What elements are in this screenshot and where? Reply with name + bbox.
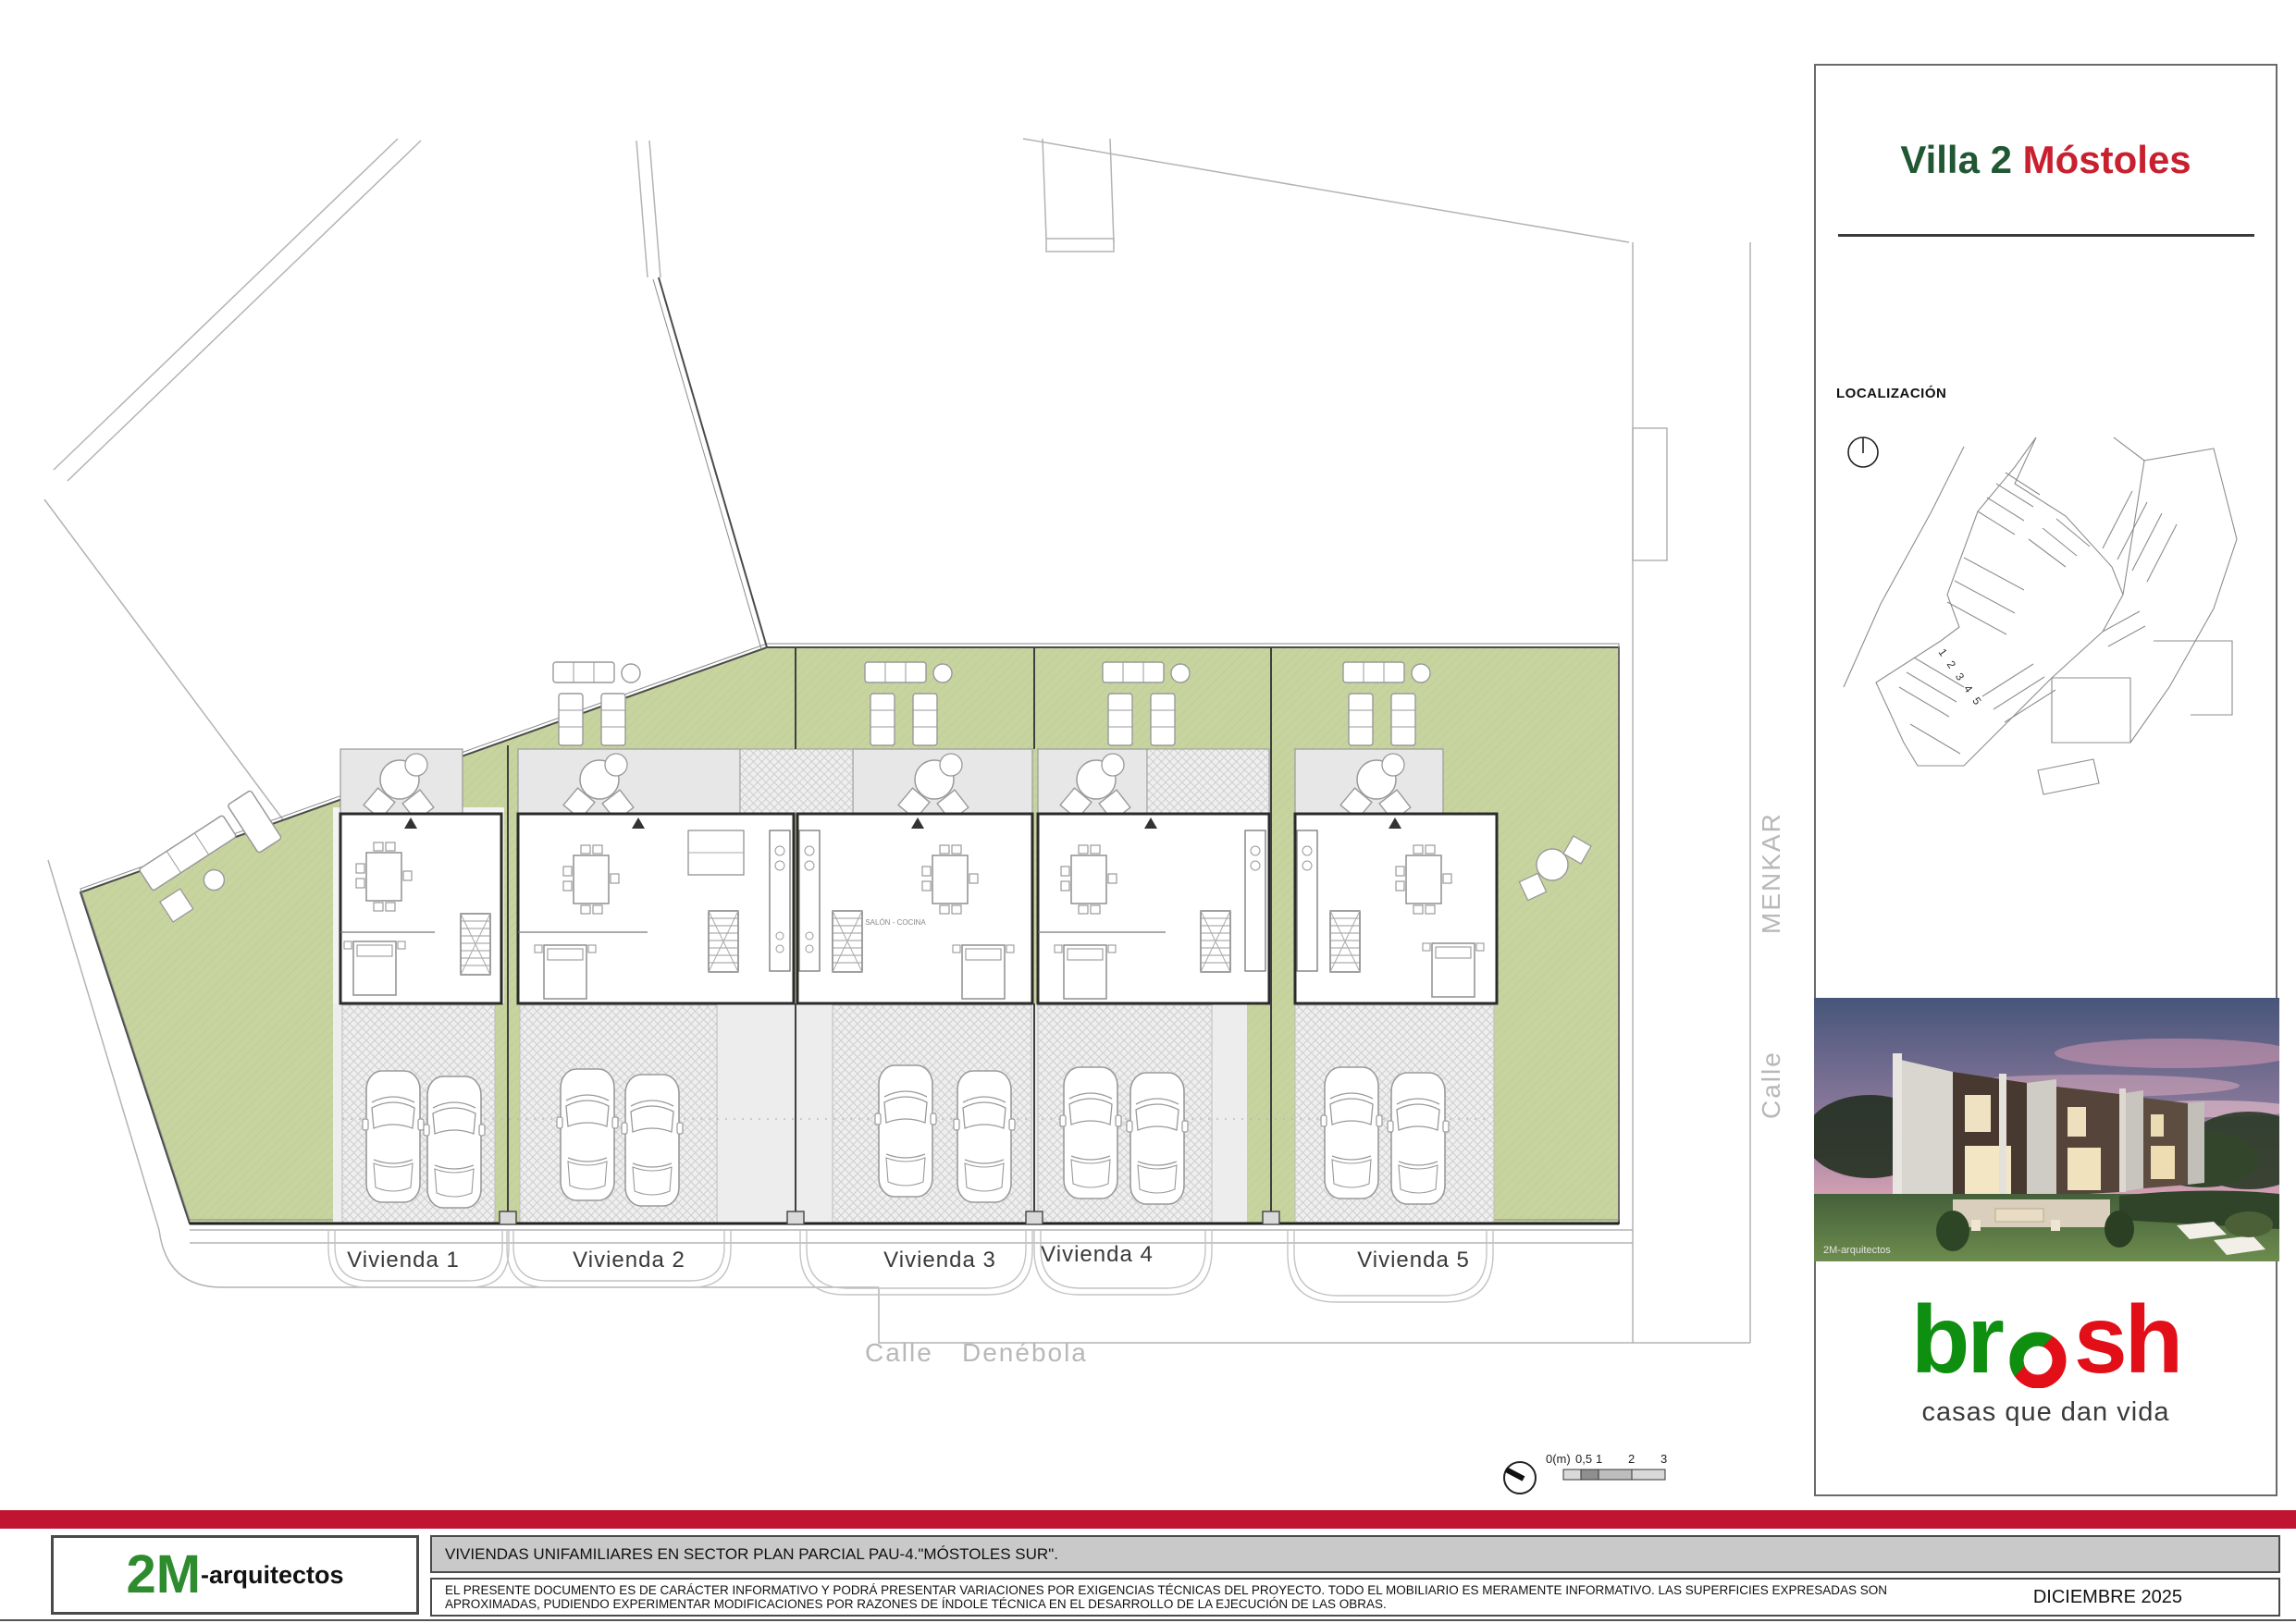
scale-3: 3 [1660,1452,1667,1466]
sheet-bottom-border [0,1619,2296,1621]
project-name-bar: VIVIENDAS UNIFAMILIARES EN SECTOR PLAN P… [430,1535,2280,1573]
site-plan: SALÓN - COCINA [0,0,1814,1507]
drawing-sheet: SALÓN - COCINA [0,0,2296,1623]
street-denebola-prefix: Calle [865,1338,933,1367]
room-label: SALÓN - COCINA [865,918,926,927]
render-watermark: 2M-arquitectos [1823,1245,1891,1256]
house-unit-4 [1038,814,1269,1003]
brosh-logo-sh: sh [2074,1292,2180,1388]
title-block-panel: Villa 2 Móstoles LOCALIZACIÓN [1814,64,2277,1496]
vivienda-labels: Vivienda 1 Vivienda 2 Vivienda 3 Viviend… [347,1242,1470,1273]
house-unit-5 [1295,814,1497,1003]
disclaimer-text: EL PRESENTE DOCUMENTO ES DE CARÁCTER INF… [445,1583,1962,1612]
project-title-green: Villa 2 [1900,138,2012,181]
street-denebola-name: Denébola [962,1338,1088,1367]
project-title-red: Móstoles [2023,138,2191,181]
title-divider [1838,234,2254,237]
street-menkar-prefix: Calle [1757,1051,1785,1119]
project-title: Villa 2 Móstoles [1816,138,2276,182]
disclaimer-bar: EL PRESENTE DOCUMENTO ES DE CARÁCTER INF… [430,1578,2280,1617]
architect-logo-box: 2M-arquitectos [51,1535,419,1615]
architect-logo-2m: 2M [126,1548,201,1602]
localization-label: LOCALIZACIÓN [1836,386,1946,401]
building-render: 2M-arquitectos [1814,998,2279,1261]
vivienda-2-label: Vivienda 2 [573,1248,685,1273]
scale-1: 1 [1596,1452,1602,1466]
north-indicator [1504,1462,1536,1494]
brand-logo: br sh casas que dan vida [1816,1292,2276,1428]
footer-red-band [0,1510,2296,1529]
brand-tagline: casas que dan vida [1922,1397,2170,1428]
compass-icon [1848,437,1878,467]
map-lot-numbers: 1 2 3 4 5 [1936,646,1986,709]
scale-0: 0(m) [1546,1452,1571,1466]
date-label: DICIEMBRE 2025 [2033,1587,2182,1608]
brosh-logo-br: br [1911,1292,2002,1388]
brosh-logo-o-icon [2004,1316,2072,1388]
scale-05: 0,5 [1575,1452,1592,1466]
house-unit-1 [340,814,501,1003]
scale-2: 2 [1628,1452,1635,1466]
vivienda-3-label: Vivienda 3 [883,1248,996,1273]
vivienda-5-label: Vivienda 5 [1357,1248,1470,1273]
architect-logo-suffix: -arquitectos [201,1561,344,1590]
street-menkar-name: MENKAR [1757,812,1785,934]
project-name-text: VIVIENDAS UNIFAMILIARES EN SECTOR PLAN P… [445,1545,1058,1564]
scale-bar: 0(m) 0,5 1 2 3 [1546,1452,1667,1480]
house-unit-3: SALÓN - COCINA [797,814,1032,1003]
location-map: 1 2 3 4 5 [1825,410,2260,844]
vivienda-4-label: Vivienda 4 [1041,1242,1154,1267]
house-unit-2 [518,814,794,1003]
vivienda-1-label: Vivienda 1 [347,1248,460,1273]
